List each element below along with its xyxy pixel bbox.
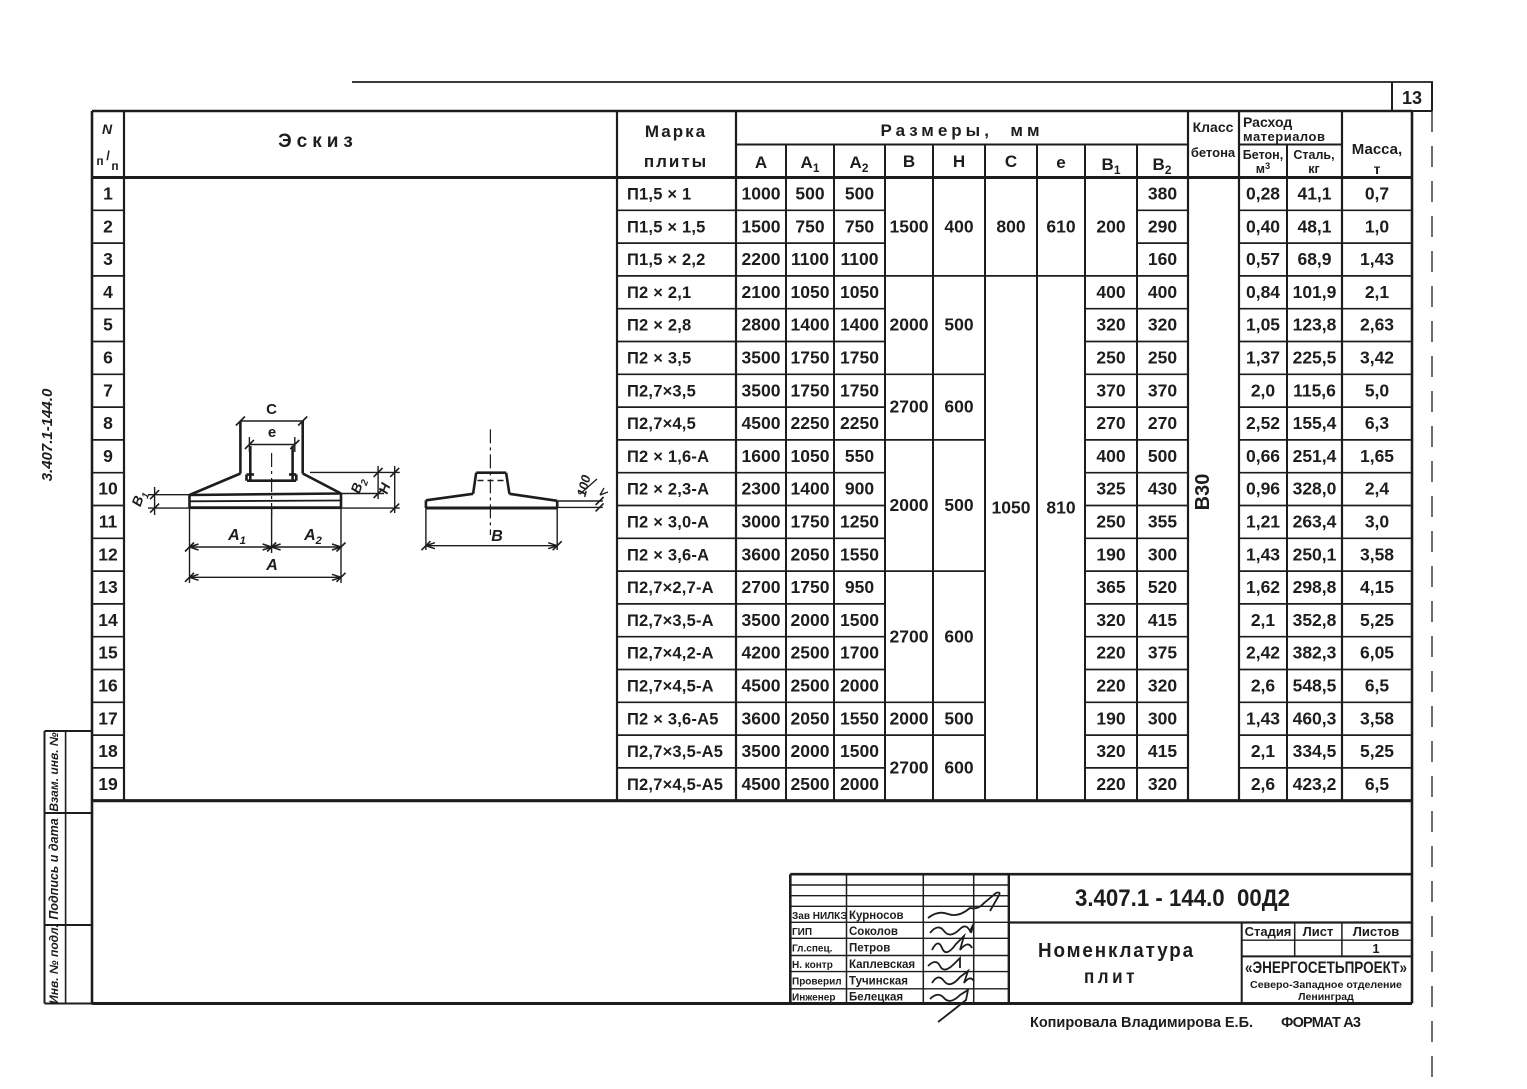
svg-text:П2,7×3,5: П2,7×3,5 [627,382,696,400]
svg-text:3,0: 3,0 [1365,512,1390,532]
svg-text:бетона: бетона [1191,145,1236,160]
svg-text:4,15: 4,15 [1360,577,1394,597]
svg-text:270: 270 [1096,413,1125,433]
svg-text:1500: 1500 [840,610,879,630]
svg-text:П2,7×4,5-А: П2,7×4,5-А [627,678,714,696]
svg-text:2000: 2000 [791,741,830,761]
svg-text:1750: 1750 [791,380,830,400]
svg-text:300: 300 [1148,708,1177,728]
svg-text:1,21: 1,21 [1246,512,1280,532]
svg-text:В1: В1 [128,488,152,509]
svg-text:1750: 1750 [791,348,830,368]
svg-text:1050: 1050 [992,498,1031,518]
svg-text:2000: 2000 [840,676,879,696]
svg-text:0,7: 0,7 [1365,184,1389,204]
svg-text:298,8: 298,8 [1293,577,1337,597]
svg-text:320: 320 [1148,315,1177,335]
svg-text:15: 15 [98,643,118,663]
svg-text:2000: 2000 [890,495,929,515]
svg-text:С: С [266,401,277,418]
svg-text:500: 500 [944,315,973,335]
svg-text:500: 500 [845,184,874,204]
svg-text:352,8: 352,8 [1293,610,1337,630]
svg-text:3,58: 3,58 [1360,708,1394,728]
svg-text:2,63: 2,63 [1360,315,1394,335]
svg-text:4500: 4500 [742,413,781,433]
svg-text:/: / [106,148,110,163]
svg-text:6,05: 6,05 [1360,643,1394,663]
svg-text:2,4: 2,4 [1365,479,1390,499]
svg-text:1600: 1600 [742,446,781,466]
svg-text:е: е [1056,153,1065,172]
svg-text:П2,7×2,7-А: П2,7×2,7-А [627,579,714,597]
svg-text:1500: 1500 [840,741,879,761]
svg-text:11: 11 [99,512,118,532]
svg-text:5: 5 [103,315,113,335]
svg-text:520: 520 [1148,577,1177,597]
svg-text:Подпись и дата: Подпись и дата [47,818,61,919]
svg-text:Эскиз: Эскиз [278,131,358,152]
svg-text:П2,7×4,5: П2,7×4,5 [627,415,696,433]
svg-text:19: 19 [98,774,118,794]
svg-text:Масса,: Масса, [1352,141,1402,158]
svg-text:Каплевская: Каплевская [849,959,915,971]
svg-text:123,8: 123,8 [1293,315,1337,335]
svg-text:Класс: Класс [1193,119,1234,135]
svg-text:325: 325 [1096,479,1125,499]
svg-text:1,0: 1,0 [1365,216,1390,236]
svg-text:П2,7×3,5-А5: П2,7×3,5-А5 [627,743,723,761]
svg-text:2000: 2000 [840,774,879,794]
svg-text:4500: 4500 [742,676,781,696]
svg-text:1750: 1750 [840,380,879,400]
svg-text:П2,7×4,2-А: П2,7×4,2-А [627,645,714,663]
svg-text:Марка: Марка [645,122,707,141]
svg-text:1100: 1100 [791,249,829,269]
svg-text:250: 250 [1096,348,1125,368]
svg-text:Зав НИЛКЭ: Зав НИЛКЭ [792,911,848,922]
svg-text:1,62: 1,62 [1246,577,1280,597]
svg-text:550: 550 [845,446,874,466]
svg-text:п: п [96,154,103,168]
svg-text:382,3: 382,3 [1293,643,1337,663]
svg-text:2100: 2100 [742,282,781,302]
svg-text:Тучинская: Тучинская [849,976,908,988]
svg-text:ГИП: ГИП [792,927,812,938]
svg-text:334,5: 334,5 [1293,741,1337,761]
svg-text:423,2: 423,2 [1293,774,1337,794]
svg-text:Расход: Расход [1243,114,1292,130]
svg-text:1,05: 1,05 [1246,315,1280,335]
svg-text:400: 400 [944,216,973,236]
svg-text:1750: 1750 [791,512,830,532]
svg-text:500: 500 [944,708,973,728]
svg-text:Копировала Владимирова Е.Б.: Копировала Владимирова Е.Б. [1030,1015,1253,1031]
svg-text:В1: В1 [1102,155,1121,177]
svg-text:2300: 2300 [742,479,781,499]
svg-text:3.407.1-144.0: 3.407.1-144.0 [39,388,56,481]
svg-text:1400: 1400 [791,315,830,335]
svg-text:200: 200 [1096,216,1125,236]
svg-text:3600: 3600 [742,544,781,564]
svg-text:ФОРМАТ А3: ФОРМАТ А3 [1281,1015,1361,1031]
svg-text:320: 320 [1096,610,1125,630]
svg-text:3000: 3000 [742,512,781,532]
svg-text:2700: 2700 [890,626,929,646]
svg-text:2: 2 [103,216,113,236]
svg-text:Лист: Лист [1303,924,1334,939]
svg-text:A2: A2 [850,153,869,175]
svg-text:1750: 1750 [791,577,830,597]
svg-text:Н. контр: Н. контр [792,960,833,971]
svg-text:1: 1 [1372,941,1379,956]
svg-text:4500: 4500 [742,774,781,794]
svg-text:П2 × 3,5: П2 × 3,5 [627,350,691,368]
svg-text:Гл.спец.: Гл.спец. [792,943,833,954]
svg-text:0,40: 0,40 [1246,216,1280,236]
svg-text:220: 220 [1096,643,1125,663]
svg-text:41,1: 41,1 [1297,184,1331,204]
svg-text:548,5: 548,5 [1293,676,1337,696]
svg-text:1,43: 1,43 [1246,544,1280,564]
svg-text:320: 320 [1096,315,1125,335]
svg-text:Северо-Западное отделение: Северо-Западное отделение [1250,979,1402,991]
svg-text:5,0: 5,0 [1365,380,1390,400]
svg-text:320: 320 [1148,676,1177,696]
svg-text:48,1: 48,1 [1297,216,1331,236]
svg-text:С: С [1005,152,1017,171]
svg-text:А2: А2 [303,527,323,547]
svg-text:П2 × 2,3-А: П2 × 2,3-А [627,481,709,499]
svg-text:190: 190 [1096,544,1125,564]
svg-text:0,57: 0,57 [1246,249,1280,269]
svg-text:В30: В30 [1192,474,1214,511]
svg-text:A1: A1 [801,153,820,175]
svg-text:Н: Н [953,152,965,171]
svg-text:3500: 3500 [742,741,781,761]
svg-text:A: A [755,153,767,172]
svg-text:П2 × 2,8: П2 × 2,8 [627,317,691,335]
svg-text:2,0: 2,0 [1251,380,1276,400]
svg-text:2700: 2700 [742,577,781,597]
svg-text:1500: 1500 [742,216,781,236]
svg-text:415: 415 [1148,741,1177,761]
svg-text:8: 8 [103,413,113,433]
svg-text:м3: м3 [1256,161,1270,176]
svg-text:1250: 1250 [840,512,879,532]
svg-text:6: 6 [103,348,113,368]
svg-text:е: е [268,424,276,441]
svg-text:101,9: 101,9 [1293,282,1337,302]
svg-text:0,66: 0,66 [1246,446,1280,466]
svg-text:13: 13 [98,577,118,597]
svg-text:1050: 1050 [840,282,879,302]
svg-text:115,6: 115,6 [1293,380,1336,400]
svg-text:5,25: 5,25 [1360,610,1394,630]
svg-text:1: 1 [103,184,113,204]
svg-text:1100: 1100 [841,249,879,269]
svg-text:П2 × 1,6-А: П2 × 1,6-А [627,448,709,466]
svg-text:270: 270 [1148,413,1177,433]
svg-text:п: п [111,159,118,173]
svg-text:600: 600 [944,758,973,778]
svg-text:плиты: плиты [644,152,708,171]
svg-text:6,5: 6,5 [1365,676,1390,696]
svg-text:плит: плит [1084,967,1138,988]
svg-text:251,4: 251,4 [1293,446,1337,466]
svg-text:П1,5 × 1,5: П1,5 × 1,5 [627,218,706,236]
svg-text:1550: 1550 [840,708,879,728]
svg-text:6,3: 6,3 [1365,413,1390,433]
svg-text:2800: 2800 [742,315,781,335]
svg-text:«ЭНЕРГОСЕТЬПРОЕКТ»: «ЭНЕРГОСЕТЬПРОЕКТ» [1245,959,1407,977]
svg-text:2700: 2700 [890,758,929,778]
svg-text:610: 610 [1046,216,1075,236]
svg-text:430: 430 [1148,479,1177,499]
svg-text:13: 13 [1402,88,1422,108]
svg-text:Сталь,: Сталь, [1293,148,1334,162]
svg-text:3,42: 3,42 [1360,348,1394,368]
svg-text:2250: 2250 [791,413,830,433]
svg-text:750: 750 [845,216,874,236]
svg-text:1,37: 1,37 [1246,348,1280,368]
svg-text:кг: кг [1308,162,1319,176]
svg-text:155,4: 155,4 [1293,413,1337,433]
svg-text:3500: 3500 [742,610,781,630]
svg-text:370: 370 [1148,380,1177,400]
svg-text:2000: 2000 [890,315,929,335]
svg-text:400: 400 [1148,282,1177,302]
svg-text:2050: 2050 [791,544,830,564]
svg-text:320: 320 [1096,741,1125,761]
svg-text:220: 220 [1096,774,1125,794]
svg-text:2,6: 2,6 [1251,774,1276,794]
svg-text:1400: 1400 [791,479,830,499]
svg-text:7: 7 [103,380,113,400]
svg-text:N: N [102,121,113,137]
svg-text:600: 600 [944,397,973,417]
svg-text:380: 380 [1148,184,1177,204]
svg-text:Соколов: Соколов [849,926,898,938]
svg-text:18: 18 [98,741,118,761]
svg-text:1,43: 1,43 [1246,708,1280,728]
svg-text:2,6: 2,6 [1251,676,1276,696]
svg-text:1000: 1000 [742,184,781,204]
svg-text:2700: 2700 [890,397,929,417]
svg-text:В: В [903,152,915,171]
svg-text:328,0: 328,0 [1293,479,1337,499]
svg-text:Номенклатура: Номенклатура [1038,940,1195,962]
svg-text:250: 250 [1148,348,1177,368]
svg-text:т: т [1374,161,1381,177]
svg-text:800: 800 [996,216,1025,236]
svg-text:П2,7×3,5-А: П2,7×3,5-А [627,612,714,630]
svg-text:1050: 1050 [791,282,830,302]
svg-text:3: 3 [103,249,113,269]
svg-text:500: 500 [1148,446,1177,466]
svg-text:16: 16 [98,676,118,696]
svg-text:2,1: 2,1 [1251,741,1276,761]
svg-text:810: 810 [1046,498,1075,518]
svg-text:600: 600 [944,626,973,646]
svg-text:Листов: Листов [1353,924,1399,939]
svg-text:460,3: 460,3 [1293,708,1337,728]
svg-text:2500: 2500 [791,774,830,794]
svg-text:Размеры, мм: Размеры, мм [880,121,1043,140]
svg-text:Петров: Петров [849,942,890,954]
svg-text:2000: 2000 [890,708,929,728]
svg-text:Проверил: Проверил [792,977,842,988]
svg-text:950: 950 [845,577,874,597]
svg-text:Стадия: Стадия [1245,924,1292,939]
svg-text:1700: 1700 [840,643,879,663]
svg-text:290: 290 [1148,216,1177,236]
svg-text:3500: 3500 [742,380,781,400]
svg-text:365: 365 [1096,577,1125,597]
svg-text:2,1: 2,1 [1365,282,1390,302]
svg-text:250: 250 [1096,512,1125,532]
svg-text:17: 17 [98,708,117,728]
svg-text:4: 4 [103,282,113,302]
svg-text:225,5: 225,5 [1293,348,1337,368]
svg-text:12: 12 [98,544,118,564]
svg-text:1550: 1550 [840,544,879,564]
svg-text:9: 9 [103,446,113,466]
svg-text:300: 300 [1148,544,1177,564]
svg-text:П2 × 2,1: П2 × 2,1 [627,284,691,302]
svg-text:2200: 2200 [742,249,781,269]
svg-text:2500: 2500 [791,643,830,663]
svg-text:1050: 1050 [791,446,830,466]
svg-text:500: 500 [795,184,824,204]
svg-text:Ленинград: Ленинград [1298,991,1354,1003]
svg-text:750: 750 [795,216,824,236]
svg-text:Инженер: Инженер [792,993,835,1004]
svg-text:375: 375 [1148,643,1177,663]
svg-text:П2,7×4,5-А5: П2,7×4,5-А5 [627,776,723,794]
svg-text:0,28: 0,28 [1246,184,1280,204]
svg-text:370: 370 [1096,380,1125,400]
svg-text:250,1: 250,1 [1293,544,1337,564]
svg-text:1500: 1500 [890,216,929,236]
svg-text:2000: 2000 [791,610,830,630]
svg-text:3600: 3600 [742,708,781,728]
svg-text:160: 160 [1148,249,1177,269]
svg-text:материалов: материалов [1243,129,1325,144]
svg-text:10: 10 [98,479,118,499]
svg-text:3500: 3500 [742,348,781,368]
svg-text:400: 400 [1096,282,1125,302]
svg-text:П2 × 3,0-А: П2 × 3,0-А [627,514,709,532]
svg-text:263,4: 263,4 [1293,512,1337,532]
svg-text:В2: В2 [1153,155,1172,177]
svg-text:1,65: 1,65 [1360,446,1394,466]
svg-text:3.407.1 - 144.0 00Д2: 3.407.1 - 144.0 00Д2 [1075,885,1290,912]
svg-text:Взам. инв. №: Взам. инв. № [47,732,61,812]
svg-text:4200: 4200 [742,643,781,663]
svg-text:2050: 2050 [791,708,830,728]
svg-text:900: 900 [845,479,874,499]
svg-text:В: В [491,528,503,545]
svg-text:0,84: 0,84 [1246,282,1280,302]
svg-text:14: 14 [98,610,118,630]
svg-text:415: 415 [1148,610,1177,630]
svg-text:400: 400 [1096,446,1125,466]
svg-text:1750: 1750 [840,348,879,368]
svg-text:100: 100 [574,473,594,499]
svg-text:500: 500 [944,495,973,515]
svg-text:68,9: 68,9 [1297,249,1331,269]
svg-text:Курносов: Курносов [849,910,904,922]
svg-text:355: 355 [1148,512,1177,532]
svg-text:190: 190 [1096,708,1125,728]
svg-text:П2 × 3,6-А5: П2 × 3,6-А5 [627,710,719,728]
svg-text:1400: 1400 [840,315,879,335]
svg-text:П1,5 × 2,2: П1,5 × 2,2 [627,251,706,269]
svg-text:6,5: 6,5 [1365,774,1390,794]
svg-text:1,43: 1,43 [1360,249,1394,269]
svg-text:320: 320 [1148,774,1177,794]
svg-text:2,42: 2,42 [1246,643,1280,663]
svg-text:2,52: 2,52 [1246,413,1280,433]
svg-text:Инв. № подл.: Инв. № подл. [47,924,61,1004]
svg-text:2500: 2500 [791,676,830,696]
svg-text:П1,5 × 1: П1,5 × 1 [627,186,691,204]
svg-text:0,96: 0,96 [1246,479,1280,499]
svg-text:2250: 2250 [840,413,879,433]
svg-text:3,58: 3,58 [1360,544,1394,564]
svg-text:Белецкая: Белецкая [849,992,903,1004]
svg-text:А1: А1 [227,527,246,547]
svg-text:220: 220 [1096,676,1125,696]
svg-text:П2 × 3,6-А: П2 × 3,6-А [627,546,709,564]
svg-text:5,25: 5,25 [1360,741,1394,761]
svg-text:Бетон,: Бетон, [1243,148,1283,162]
svg-text:2,1: 2,1 [1251,610,1276,630]
svg-text:А: А [265,557,278,574]
